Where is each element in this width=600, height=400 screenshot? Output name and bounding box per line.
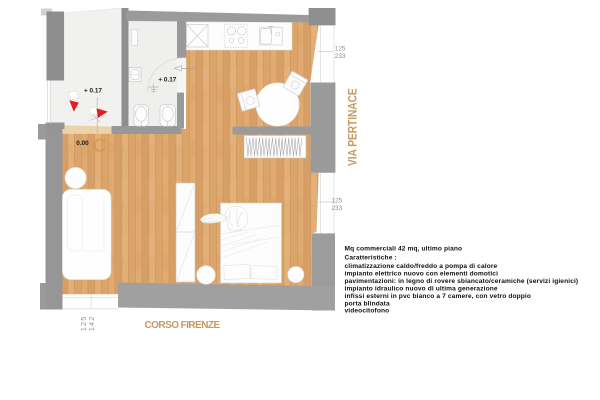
svg-text:142: 142 bbox=[87, 316, 96, 332]
svg-text:+ 0.17: + 0.17 bbox=[158, 77, 176, 84]
svg-text:VIA PERTINACE: VIA PERTINACE bbox=[347, 88, 360, 166]
svg-text:climatizzazione caldo/freddo a: climatizzazione caldo/freddo a pompa di … bbox=[345, 263, 498, 270]
svg-text:CORSO FIRENZE: CORSO FIRENZE bbox=[145, 320, 221, 331]
svg-text:impianto elettrico nuovo con e: impianto elettrico nuovo con elementi do… bbox=[345, 270, 499, 277]
svg-text:+ 0.17: + 0.17 bbox=[84, 87, 102, 94]
svg-text:233: 233 bbox=[335, 53, 346, 60]
svg-text:videocitofono: videocitofono bbox=[345, 308, 390, 315]
svg-text:125: 125 bbox=[335, 46, 346, 53]
svg-text:infissi esterni in pvc bianco: infissi esterni in pvc bianco a 7 camere… bbox=[345, 293, 532, 300]
svg-text:impianto idraulico nuovo di ul: impianto idraulico nuovo di ultima gener… bbox=[345, 286, 498, 293]
svg-text:pavimentazioni: in legno di ro: pavimentazioni: in legno di rovere sbian… bbox=[345, 278, 579, 285]
svg-text:0.00: 0.00 bbox=[76, 140, 89, 147]
svg-text:Caratteristiche :: Caratteristiche : bbox=[345, 254, 397, 261]
svg-text:233: 233 bbox=[332, 205, 343, 212]
svg-text:125: 125 bbox=[332, 198, 343, 205]
svg-text:C: C bbox=[93, 135, 107, 157]
svg-text:porta blindata: porta blindata bbox=[345, 300, 390, 307]
svg-text:Mq commerciali 42 mq, ultimo p: Mq commerciali 42 mq, ultimo piano bbox=[345, 245, 463, 252]
